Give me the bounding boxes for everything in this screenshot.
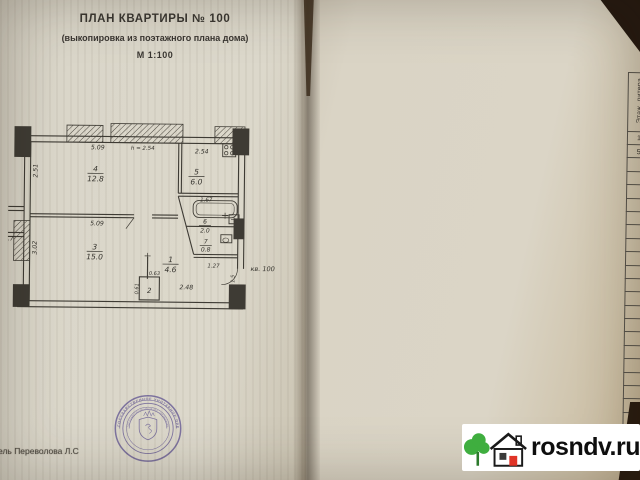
room-number: 7 bbox=[204, 238, 208, 245]
table-cell bbox=[624, 372, 640, 386]
room-area: 0.8 bbox=[201, 246, 211, 253]
room-number: 1 bbox=[168, 255, 173, 264]
room-number: 5 bbox=[194, 167, 199, 176]
room-label-lines bbox=[87, 173, 213, 264]
room-number: 3 bbox=[92, 242, 97, 251]
table-cell: 5 bbox=[627, 144, 640, 158]
plan-subtitle: (выкопировка из поэтажного плана дома) bbox=[0, 33, 310, 43]
dim-label: 5.09 bbox=[91, 144, 105, 151]
rosndv-watermark: rosndv.ru bbox=[462, 424, 640, 471]
table-cell bbox=[625, 265, 640, 279]
dim-label: 1.5 bbox=[230, 275, 236, 283]
dim-label: 2.48 bbox=[179, 284, 193, 291]
room-number: 2 bbox=[147, 287, 152, 295]
round-stamp: ГОСУДАРСТВЕННОЕ УНИТАРНОЕ ПРЕДПРИЯТИЕ ГО… bbox=[78, 392, 218, 480]
right-page: II. Экспликация площади квартиры Этаж, л… bbox=[306, 0, 640, 480]
plan-fixtures bbox=[145, 143, 240, 260]
table-cell bbox=[625, 252, 640, 266]
table-cell bbox=[624, 345, 640, 359]
tree-icon bbox=[464, 433, 490, 466]
scanned-floor-plan-document: ПЛАН КВАРТИРЫ № 100 (выкопировка из поэт… bbox=[0, 0, 640, 480]
dim-label: 0.61 bbox=[134, 283, 140, 294]
table-cell bbox=[627, 158, 640, 172]
table-cell bbox=[625, 278, 640, 292]
table-cell bbox=[626, 225, 640, 239]
table-cell bbox=[625, 305, 640, 319]
dim-label: 1.67 bbox=[200, 197, 213, 203]
room-area: 15.0 bbox=[86, 252, 103, 261]
room-area: 4.6 bbox=[164, 265, 176, 274]
table-cell bbox=[624, 359, 640, 373]
watermark-text: rosndv.ru bbox=[531, 433, 640, 462]
executor-signature: ель Переволова Л.С bbox=[0, 446, 79, 456]
table-cell bbox=[627, 171, 640, 185]
dim-label: 0.63 bbox=[149, 271, 160, 277]
room-area: 2.0 bbox=[200, 227, 210, 234]
rosndv-logo bbox=[462, 427, 529, 469]
dim-label: 1.27 bbox=[207, 264, 220, 270]
table-cell bbox=[626, 198, 640, 212]
room-area: 6.0 bbox=[190, 177, 202, 186]
dim-label: 3.7 bbox=[7, 235, 14, 242]
dim-label: 2.51 bbox=[32, 164, 39, 178]
dim-label: 3.02 bbox=[32, 241, 39, 255]
col-header-floor: Этаж, литера bbox=[628, 73, 640, 132]
table-cell bbox=[624, 319, 640, 333]
left-page: ПЛАН КВАРТИРЫ № 100 (выкопировка из поэт… bbox=[0, 0, 310, 480]
room-number: 6 bbox=[203, 218, 207, 225]
dim-label: 2.54 bbox=[195, 148, 209, 155]
table-cell bbox=[626, 211, 640, 225]
table-cell bbox=[626, 238, 640, 252]
house-icon bbox=[491, 434, 526, 466]
table-cell bbox=[625, 292, 640, 306]
table-cell bbox=[623, 386, 640, 400]
room-area: 12.8 bbox=[87, 174, 104, 183]
apartment-number-label: кв. 100 bbox=[250, 265, 274, 273]
plan-walls bbox=[7, 135, 245, 308]
plan-scale: М 1:100 bbox=[0, 50, 310, 60]
table-cell bbox=[627, 185, 640, 199]
plan-title: ПЛАН КВАРТИРЫ № 100 bbox=[0, 13, 310, 25]
table-cell bbox=[624, 332, 640, 346]
dim-label: h = 2.54 bbox=[131, 146, 155, 152]
room-number: 4 bbox=[93, 164, 98, 173]
dim-label: 5.09 bbox=[90, 220, 104, 227]
floor-plan-drawing: 5.09 h = 2.54 2.54 5.09 1.67 1.27 2.48 0… bbox=[7, 120, 309, 323]
